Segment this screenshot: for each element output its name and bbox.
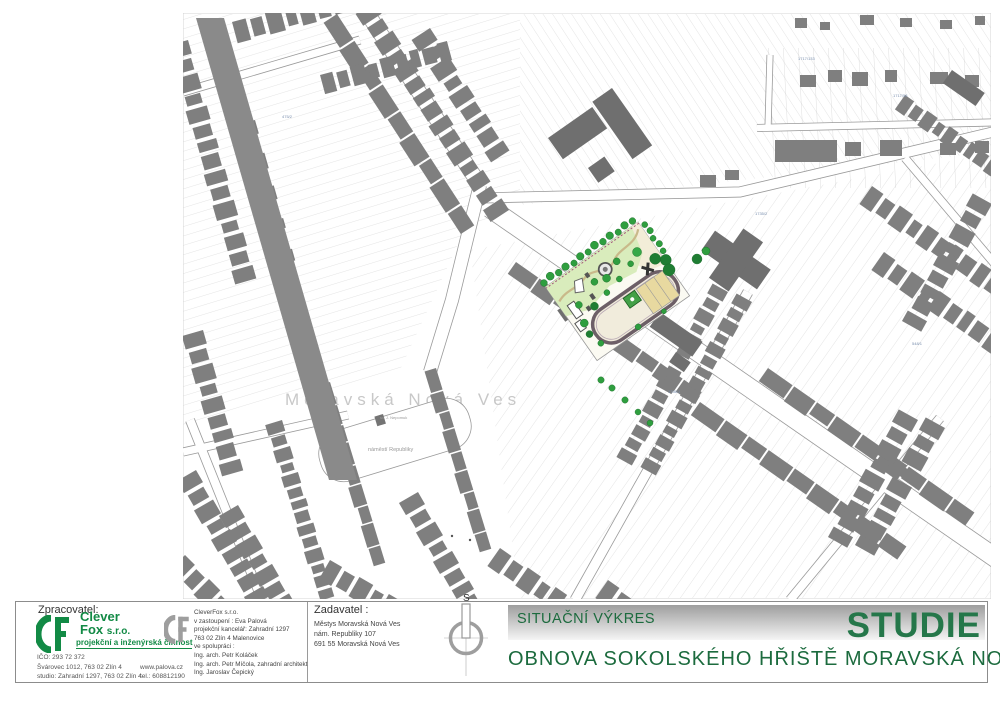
zadavatel-info: Městys Moravská Nová Ves nám. Republiky …: [314, 620, 400, 650]
address-line-2: studio: Zahradní 1297, 763 02 Zlín 4: [37, 672, 142, 681]
cleverfox-monogram-gray-icon: [164, 615, 194, 644]
map-area: Moravská Nová Ves: [0, 0, 1000, 600]
stage-title: STUDIE: [847, 606, 981, 646]
ico-line: IČO: 293 72 372: [37, 653, 85, 662]
zadavatel-label: Zadavatel :: [314, 604, 368, 616]
zadavatel-line-1: Městys Moravská Nová Ves: [314, 620, 400, 630]
company-info: CleverFox s.r.o. v zastoupení : Eva Palo…: [194, 609, 307, 678]
address-line-1: Švárovec 1012, 763 02 Zlín 4: [37, 663, 122, 672]
square-label: náměstí Republiky: [368, 447, 413, 453]
parcel-label-2: 1735/2: [755, 211, 768, 216]
site-map: Moravská Nová Ves: [0, 0, 1000, 600]
company-coop3: Ing. Jaroslav Čepický: [194, 669, 307, 678]
parcel-label-3: 1786/1: [668, 389, 681, 394]
zadavatel-line-3: 691 55 Moravská Nová Ves: [314, 640, 400, 650]
company-coop2: Ing. arch. Petr Míčola, zahradní archite…: [194, 661, 307, 670]
tel-line: tel.: 608812190: [140, 672, 185, 681]
parcel-label-5: 475/2: [282, 114, 293, 119]
parcel-label-4: 548/1: [912, 341, 923, 346]
company-represented: v zastoupení : Eva Palová: [194, 618, 307, 627]
company-office: projekční kancelář: Zahradní 1297: [194, 626, 307, 635]
parcel-label-1: 1717/58: [893, 93, 908, 98]
cleverfox-wordmark: Clever Fox s.r.o.: [80, 610, 130, 638]
zadavatel-line-2: nám. Republiky 107: [314, 630, 400, 640]
company-cooperation: ve spolupráci :: [194, 643, 307, 652]
company-city: 763 02 Zlín 4 Malenovice: [194, 635, 307, 644]
north-label: S: [463, 593, 470, 604]
drawing-type-title: SITUAČNÍ VÝKRES: [517, 611, 655, 627]
title-strip: Zpracovatel: Clever Fox s.r.o. projekční…: [15, 601, 988, 683]
cleverfox-logo-icon: [36, 615, 76, 653]
parcel-label-0: 1717/133: [798, 56, 815, 61]
company-coop1: Ing. arch. Petr Koláček: [194, 652, 307, 661]
drawing-sheet: Moravská Nová Ves: [0, 0, 1000, 707]
web-line: www.palova.cz: [140, 663, 183, 672]
gradient-band: SITUAČNÍ VÝKRES STUDIE: [508, 605, 985, 640]
company-name: CleverFox s.r.o.: [194, 609, 307, 618]
north-indicator: S: [438, 588, 494, 688]
compass-needle: [462, 604, 470, 638]
chapel-label: sv. J. Nepomuk: [380, 415, 407, 420]
project-title: OBNOVA SOKOLSKÉHO HŘIŠTĚ MORAVSKÁ NOVÁ V…: [508, 648, 985, 671]
